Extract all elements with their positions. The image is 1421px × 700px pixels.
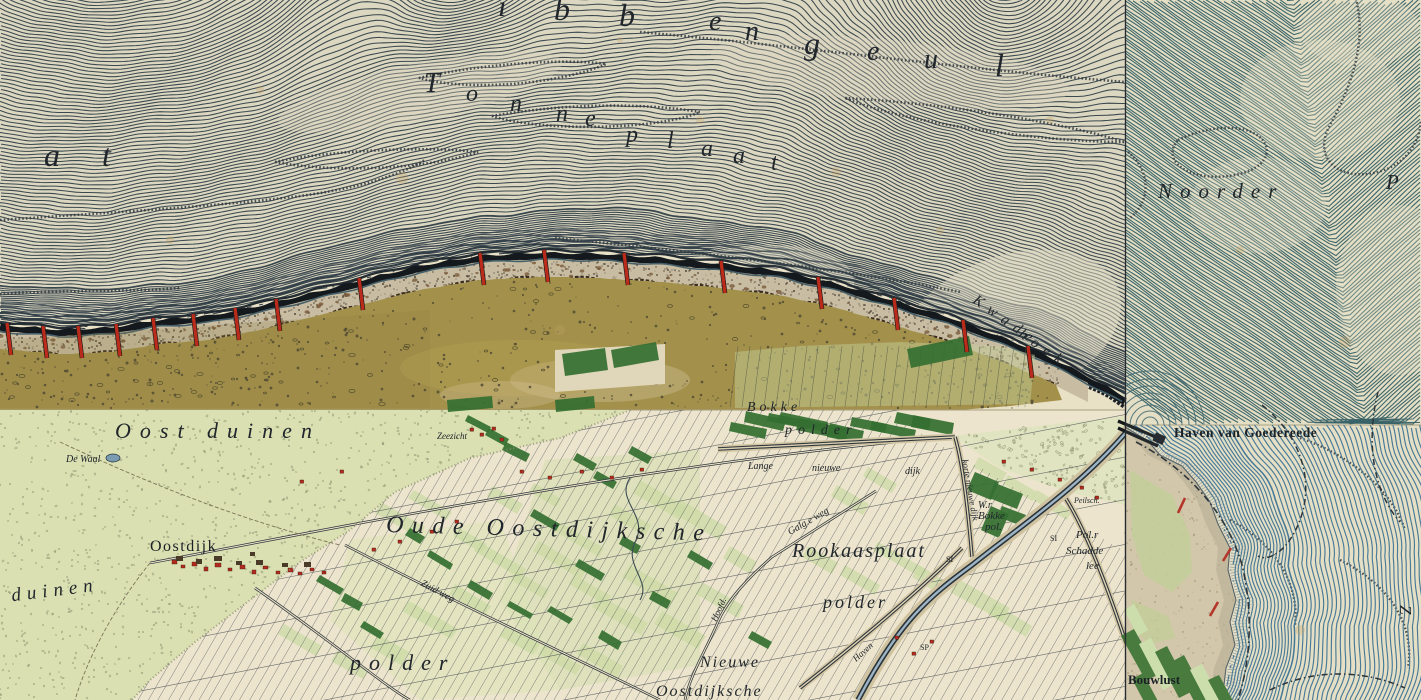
svg-text:Oostdijksche: Oostdijksche bbox=[656, 683, 763, 700]
svg-text:i: i bbox=[498, 0, 506, 23]
svg-text:b: b bbox=[554, 0, 570, 27]
svg-text:SP: SP bbox=[920, 643, 929, 652]
svg-text:Schadde: Schadde bbox=[1066, 545, 1103, 557]
svg-text:Bouwlust: Bouwlust bbox=[1128, 672, 1181, 687]
svg-text:at: at bbox=[44, 137, 153, 173]
svg-text:e: e bbox=[585, 106, 596, 132]
svg-text:T: T bbox=[424, 68, 442, 99]
svg-text:Haven van Goedereede: Haven van Goedereede bbox=[1174, 425, 1317, 440]
svg-text:n: n bbox=[556, 101, 568, 127]
svg-text:n: n bbox=[510, 91, 522, 117]
svg-text:Rookaasplaat: Rookaasplaat bbox=[791, 540, 926, 562]
svg-text:u: u bbox=[924, 44, 938, 75]
svg-text:De Waal: De Waal bbox=[65, 454, 101, 465]
svg-text:dijk: dijk bbox=[905, 466, 921, 477]
svg-text:e: e bbox=[709, 6, 721, 37]
svg-text:a: a bbox=[733, 143, 745, 169]
svg-text:Oost duinen: Oost duinen bbox=[115, 418, 321, 443]
svg-text:lee: lee bbox=[1086, 560, 1099, 572]
svg-text:g: g bbox=[804, 25, 820, 61]
svg-text:pol.: pol. bbox=[984, 521, 1002, 533]
svg-text:Peilsch.: Peilsch. bbox=[1073, 496, 1100, 505]
svg-text:SI: SI bbox=[1050, 534, 1057, 543]
svg-text:SI: SI bbox=[946, 555, 953, 564]
svg-text:o: o bbox=[466, 81, 478, 107]
svg-text:nieuwe: nieuwe bbox=[812, 463, 841, 474]
svg-text:Lange: Lange bbox=[747, 461, 774, 472]
svg-text:Zeezicht: Zeezicht bbox=[437, 431, 467, 441]
svg-text:Nieuwe: Nieuwe bbox=[699, 654, 760, 671]
svg-text:Pol.r: Pol.r bbox=[1075, 529, 1099, 541]
svg-text:e: e bbox=[867, 36, 879, 67]
svg-text:P: P bbox=[1385, 170, 1399, 194]
svg-text:l: l bbox=[995, 47, 1004, 83]
svg-text:Bokke: Bokke bbox=[747, 400, 801, 415]
svg-text:polder: polder bbox=[348, 650, 455, 675]
svg-text:l: l bbox=[667, 128, 674, 154]
svg-text:n: n bbox=[745, 16, 759, 47]
svg-text:Noorder: Noorder bbox=[1157, 179, 1284, 203]
svg-text:p: p bbox=[624, 122, 638, 148]
svg-text:polder: polder bbox=[821, 592, 888, 612]
svg-text:Oostdijk: Oostdijk bbox=[150, 538, 217, 555]
svg-text:Z: Z bbox=[1396, 605, 1415, 615]
svg-text:b: b bbox=[619, 0, 635, 33]
svg-text:polder: polder bbox=[784, 423, 858, 438]
svg-text:a: a bbox=[701, 136, 713, 162]
